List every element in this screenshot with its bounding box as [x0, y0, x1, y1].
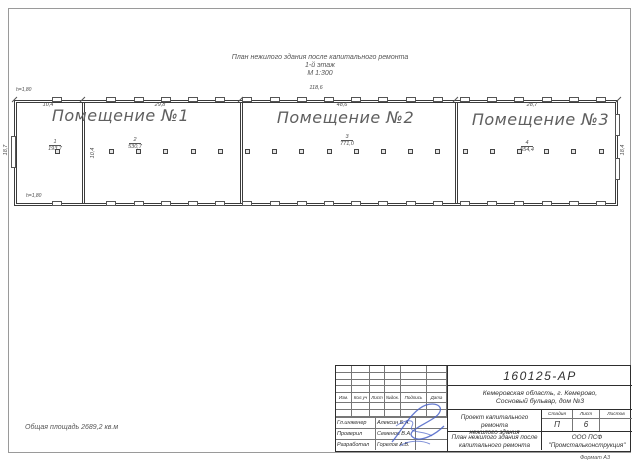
room-number: 1	[49, 139, 60, 146]
column	[517, 149, 522, 154]
height-mark-top: h=1,80	[16, 87, 31, 93]
revision-cell	[370, 386, 385, 393]
stage-header-row: Стадия Лист Листов	[542, 410, 632, 419]
window	[569, 201, 579, 206]
dim-segment-3: 48,6	[327, 102, 357, 108]
dim-partition: 10,4	[90, 138, 96, 168]
column	[599, 149, 604, 154]
project-line1: Проект капитального ремонта	[448, 414, 541, 429]
window	[324, 97, 334, 102]
dim-segment-4: 28,7	[517, 102, 547, 108]
window	[297, 201, 307, 206]
column	[136, 149, 141, 154]
window	[188, 97, 198, 102]
sheet-name-line1: План нежилого здания после	[448, 434, 541, 442]
revision-cell	[370, 366, 385, 373]
partition-wall-2	[240, 103, 243, 203]
column	[272, 149, 277, 154]
window	[106, 201, 116, 206]
window	[270, 97, 280, 102]
revision-cell	[401, 366, 427, 373]
signer-role: Разработал	[336, 440, 376, 450]
revision-cell	[336, 386, 352, 393]
company-line1: ООО ПСФ	[542, 434, 632, 442]
room-1-label: Помещение №1	[38, 106, 203, 125]
revision-cell	[370, 373, 385, 380]
window	[433, 201, 443, 206]
revision-cell	[427, 373, 447, 380]
window	[215, 97, 225, 102]
revision-cell	[385, 386, 401, 393]
window	[134, 97, 144, 102]
revision-cell	[385, 380, 401, 387]
window	[52, 201, 62, 206]
revision-cell	[427, 366, 447, 373]
revision-cell	[401, 386, 427, 393]
window	[460, 97, 470, 102]
revision-cell	[352, 380, 370, 387]
revision-cell	[370, 403, 385, 410]
window	[134, 201, 144, 206]
sheet-title-line1: План нежилого здания после капитального …	[160, 54, 480, 62]
room-number: 3	[341, 134, 352, 141]
stage-col-list: Лист	[573, 410, 600, 418]
revision-cell	[385, 373, 401, 380]
window	[324, 201, 334, 206]
sheet-header-title: План нежилого здания после капитального …	[160, 54, 480, 78]
column	[544, 149, 549, 154]
signer-role: Гл.инженер	[336, 418, 376, 428]
window	[351, 97, 361, 102]
dim-right-side: 18,4	[620, 135, 626, 165]
document-number: 160125-АР	[448, 366, 632, 386]
drawing-sheet: { "sheet": { "title_lines": [ "План нежи…	[0, 0, 640, 465]
left-wall-door	[11, 136, 16, 168]
stage-col-stadiya: Стадия	[542, 410, 573, 418]
signer-role: Проверил	[336, 429, 376, 439]
stage-table: Стадия Лист Листов П 6	[542, 410, 632, 431]
revision-cell	[352, 410, 370, 417]
window	[596, 201, 606, 206]
column	[109, 149, 114, 154]
window	[569, 97, 579, 102]
sheet-name-line2: капитального ремонта	[448, 442, 541, 450]
room-area: 530,7	[121, 144, 149, 150]
revision-cell	[401, 380, 427, 387]
dim-segment-1: 10,4	[33, 102, 63, 108]
column	[299, 149, 304, 154]
window	[188, 201, 198, 206]
dim-segment-2: 29,8	[145, 102, 175, 108]
window	[406, 97, 416, 102]
window	[378, 201, 388, 206]
room-number: 4	[521, 140, 532, 147]
stamp-bottom-row: План нежилого здания после капитального …	[448, 432, 632, 450]
revision-empty-rows	[336, 366, 447, 393]
column	[55, 149, 60, 154]
height-mark-bottom: h=1,80	[26, 193, 41, 199]
stage-value: П	[542, 419, 573, 431]
revision-cell	[385, 366, 401, 373]
title-block: Изм. Кол.уч Лист №док. Подпись Дата Гл.и…	[335, 365, 631, 452]
window	[487, 97, 497, 102]
area-marker-3: 3 771,0	[333, 134, 361, 147]
window	[270, 201, 280, 206]
column	[463, 149, 468, 154]
window	[161, 97, 171, 102]
column	[571, 149, 576, 154]
revision-cell	[370, 410, 385, 417]
format-note: Формат А3	[555, 455, 635, 461]
revision-cell	[336, 410, 352, 417]
revision-cell	[401, 373, 427, 380]
revision-cell	[352, 386, 370, 393]
revision-cell	[352, 366, 370, 373]
column	[354, 149, 359, 154]
column	[381, 149, 386, 154]
rev-col-list: Лист	[370, 393, 385, 403]
revision-cell	[336, 366, 352, 373]
window	[106, 97, 116, 102]
rev-col-izm: Изм.	[336, 393, 352, 403]
window	[596, 97, 606, 102]
window	[161, 201, 171, 206]
window	[242, 97, 252, 102]
dim-overall-top: 118,6	[286, 85, 346, 91]
total-area-note: Общая площадь 2689,2 кв.м	[25, 424, 118, 431]
dim-left-side: 18,7	[3, 135, 9, 165]
address-line2: Сосновый бульвар, дом №3	[448, 398, 632, 406]
sheet-title-line3: М 1:300	[160, 70, 480, 78]
room-area: 771,0	[333, 141, 361, 147]
revision-cell	[427, 386, 447, 393]
list-value: 6	[573, 419, 600, 431]
window	[542, 201, 552, 206]
window	[378, 97, 388, 102]
signature-scribble-icon	[388, 396, 452, 450]
window	[351, 201, 361, 206]
revision-cell	[427, 380, 447, 387]
room-3-label: Помещение №3	[458, 110, 623, 129]
column	[218, 149, 223, 154]
address-line1: Кемеровская область, г. Кемерово,	[448, 390, 632, 398]
revision-cell	[352, 403, 370, 410]
project-name: Проект капитального ремонта нежилого зда…	[448, 410, 542, 431]
revision-cell	[336, 380, 352, 387]
revision-cell	[352, 373, 370, 380]
window	[297, 97, 307, 102]
area-marker-2: 2 530,7	[121, 137, 149, 150]
sheet-name: План нежилого здания после капитального …	[448, 432, 542, 450]
window	[514, 97, 524, 102]
column	[163, 149, 168, 154]
listov-value	[600, 419, 632, 431]
window	[52, 97, 62, 102]
window	[433, 97, 443, 102]
sheet-title-line2: 1-й этаж	[160, 62, 480, 70]
revision-cell	[370, 380, 385, 387]
rev-col-koluch: Кол.уч	[352, 393, 370, 403]
window	[406, 201, 416, 206]
stage-col-listov: Листов	[600, 410, 632, 418]
stage-values-row: П 6	[542, 419, 632, 431]
stamp-middle-row: Проект капитального ремонта нежилого зда…	[448, 410, 632, 432]
window	[514, 201, 524, 206]
column	[327, 149, 332, 154]
window	[542, 97, 552, 102]
window	[215, 201, 225, 206]
company-name: ООО ПСФ "Промстальконструкция"	[542, 432, 632, 450]
company-line2: "Промстальконструкция"	[542, 442, 632, 450]
column	[408, 149, 413, 154]
room-number: 2	[129, 137, 140, 144]
column	[191, 149, 196, 154]
window	[242, 201, 252, 206]
window	[460, 201, 470, 206]
stamp-right-section: 160125-АР Кемеровская область, г. Кемеро…	[448, 366, 632, 451]
room-2-label: Помещение №2	[263, 108, 428, 127]
revision-cell	[336, 403, 352, 410]
column	[435, 149, 440, 154]
object-address: Кемеровская область, г. Кемерово, Соснов…	[448, 386, 632, 410]
column	[490, 149, 495, 154]
window	[487, 201, 497, 206]
column	[245, 149, 250, 154]
revision-cell	[336, 373, 352, 380]
